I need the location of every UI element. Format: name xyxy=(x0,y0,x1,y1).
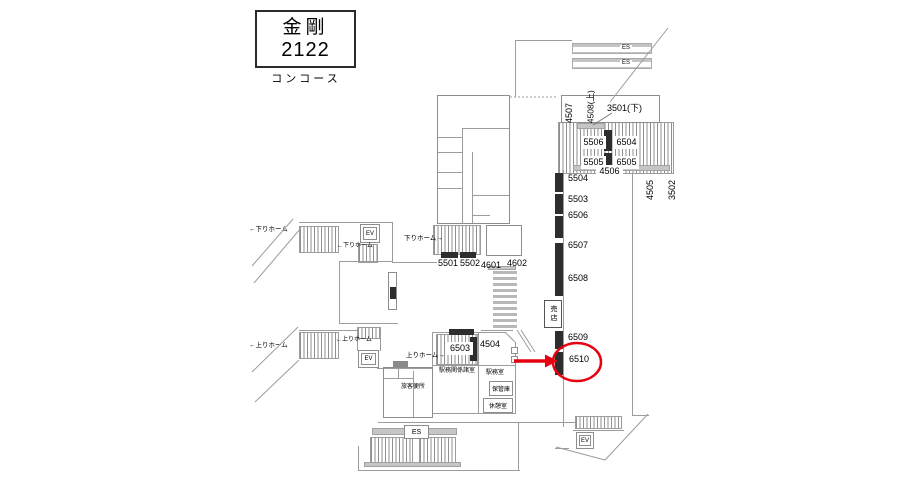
map-code: 2122 xyxy=(281,39,330,61)
ad-label-6504: 6504 xyxy=(614,136,639,149)
ad-label-6509: 6509 xyxy=(567,333,589,343)
ad-label-6503: 6503 xyxy=(447,342,473,355)
area-label: コンコース xyxy=(262,70,350,86)
escalator-top-1 xyxy=(572,43,652,54)
hall-wall xyxy=(339,261,340,323)
corridor-right-wall xyxy=(632,174,633,416)
wall-line xyxy=(378,422,525,423)
stairs-up-platform xyxy=(299,332,339,359)
wall-line xyxy=(380,327,381,351)
stairs-down-platform xyxy=(299,226,339,253)
stair-side-edge-2 xyxy=(521,330,535,352)
ad-label-3501: 3501(下) xyxy=(606,104,643,114)
ad-label-5504: 5504 xyxy=(567,174,589,184)
corridor-left-wall xyxy=(563,170,564,427)
station-name: 金剛 xyxy=(282,17,328,39)
ad-bar-6506 xyxy=(555,216,563,238)
ev-label-up: EV xyxy=(361,353,376,365)
wall-line xyxy=(518,422,519,470)
staircase-steps xyxy=(493,271,517,329)
ad-label-4508: 4508(上) xyxy=(586,86,595,128)
up-platform-label-mid: ←上りホーム xyxy=(336,337,372,343)
ev-label-down: EV xyxy=(363,227,377,240)
ad-label-4601: 4601 xyxy=(480,261,502,271)
down-platform-label-left: ←下りホーム xyxy=(249,227,288,234)
ad-label-6508: 6508 xyxy=(567,274,589,284)
ad-label-6506: 6506 xyxy=(567,211,589,221)
up-platform-label-right: 上りホーム→ xyxy=(406,353,445,360)
wall-line xyxy=(515,40,572,41)
up-platform-edge-2 xyxy=(255,360,299,402)
ad-label-6510: 6510 xyxy=(568,355,590,365)
es-label-top-1: ES xyxy=(620,45,632,51)
ad-bar-6509 xyxy=(555,331,563,349)
wall-line xyxy=(299,330,357,331)
ad-label-3502: 3502 xyxy=(668,174,678,206)
wall-line xyxy=(392,262,437,263)
room-box-storage: 保管庫 xyxy=(489,381,513,396)
room-wall xyxy=(432,413,516,414)
room-label-office-rooms: 駅務関係諸室 xyxy=(439,368,475,374)
wall-line xyxy=(632,415,649,416)
room-label-toilet: 旅客便所 xyxy=(401,384,425,390)
ev-box-down: EV xyxy=(360,224,380,243)
wall-line xyxy=(392,222,393,262)
wall-line xyxy=(358,470,520,471)
kiosk-box: 売店 xyxy=(544,300,562,328)
ad-label-4504: 4504 xyxy=(479,340,501,350)
ad-bar-5503 xyxy=(555,194,563,214)
ev-box-south: EV xyxy=(576,432,594,449)
ad-label-5503: 5503 xyxy=(567,195,589,205)
ad-label-4505: 4505 xyxy=(646,174,656,206)
ad-label-6507: 6507 xyxy=(567,241,589,251)
wall-line xyxy=(515,40,516,97)
down-platform-label-right: 下りホーム→ xyxy=(404,236,443,243)
wall-line xyxy=(358,446,359,470)
stairs-bottom-1 xyxy=(370,437,413,463)
up-platform-edge-1 xyxy=(252,327,298,372)
pillar-core xyxy=(390,287,396,299)
stairs-bottom-2 xyxy=(419,437,456,463)
up-platform-label-left: ←上りホーム xyxy=(249,343,288,350)
wall-line xyxy=(555,448,569,449)
ev-label-south: EV xyxy=(579,435,591,446)
room-corner-cut xyxy=(505,332,515,342)
room-box-rest: 休憩室 xyxy=(483,398,513,413)
hall-wall xyxy=(339,261,392,262)
wall-line xyxy=(299,222,392,223)
ad-bar-6507-6508 xyxy=(555,243,563,296)
wall-line xyxy=(573,430,624,431)
ev-box-up: EV xyxy=(358,350,379,368)
hall-wall xyxy=(339,323,398,324)
escalator-top-2 xyxy=(572,58,652,69)
concourse-block-outline xyxy=(437,95,510,224)
ad-bar-top-6503 xyxy=(449,329,474,335)
ad-bar-5504 xyxy=(555,173,563,192)
station-concourse-map: 金剛 2122 コンコース ES ES 4507 4508(上) 3501(下)… xyxy=(0,0,919,491)
down-platform-edge-2 xyxy=(254,228,301,283)
wall-line xyxy=(481,330,513,331)
es-label-bottom: ES xyxy=(404,425,429,439)
ad-bar-6510 xyxy=(555,352,563,375)
toilet-block xyxy=(383,367,433,418)
ad-label-5502: 5502 xyxy=(459,259,481,269)
stair-side-edge-1 xyxy=(517,330,531,352)
down-platform-label-mid: ←下りホーム xyxy=(337,243,373,249)
es-label-top-2: ES xyxy=(620,60,632,66)
ad-label-4602: 4602 xyxy=(506,259,528,269)
room-wall xyxy=(432,365,515,366)
stairs-bottom-right xyxy=(575,416,622,429)
ad-label-4506: 4506 xyxy=(596,165,623,177)
equipment-box xyxy=(511,356,518,363)
title-box: 金剛 2122 xyxy=(255,10,356,68)
room-label-office: 駅務室 xyxy=(486,370,504,376)
stair-landing-bar xyxy=(364,462,461,467)
ad-label-4507: 4507 xyxy=(565,96,575,130)
stair-box-4601 xyxy=(486,225,522,256)
wall-line xyxy=(518,422,575,423)
ad-label-5501: 5501 xyxy=(437,259,459,269)
ad-label-5506: 5506 xyxy=(581,136,606,149)
equipment-box xyxy=(511,347,518,354)
